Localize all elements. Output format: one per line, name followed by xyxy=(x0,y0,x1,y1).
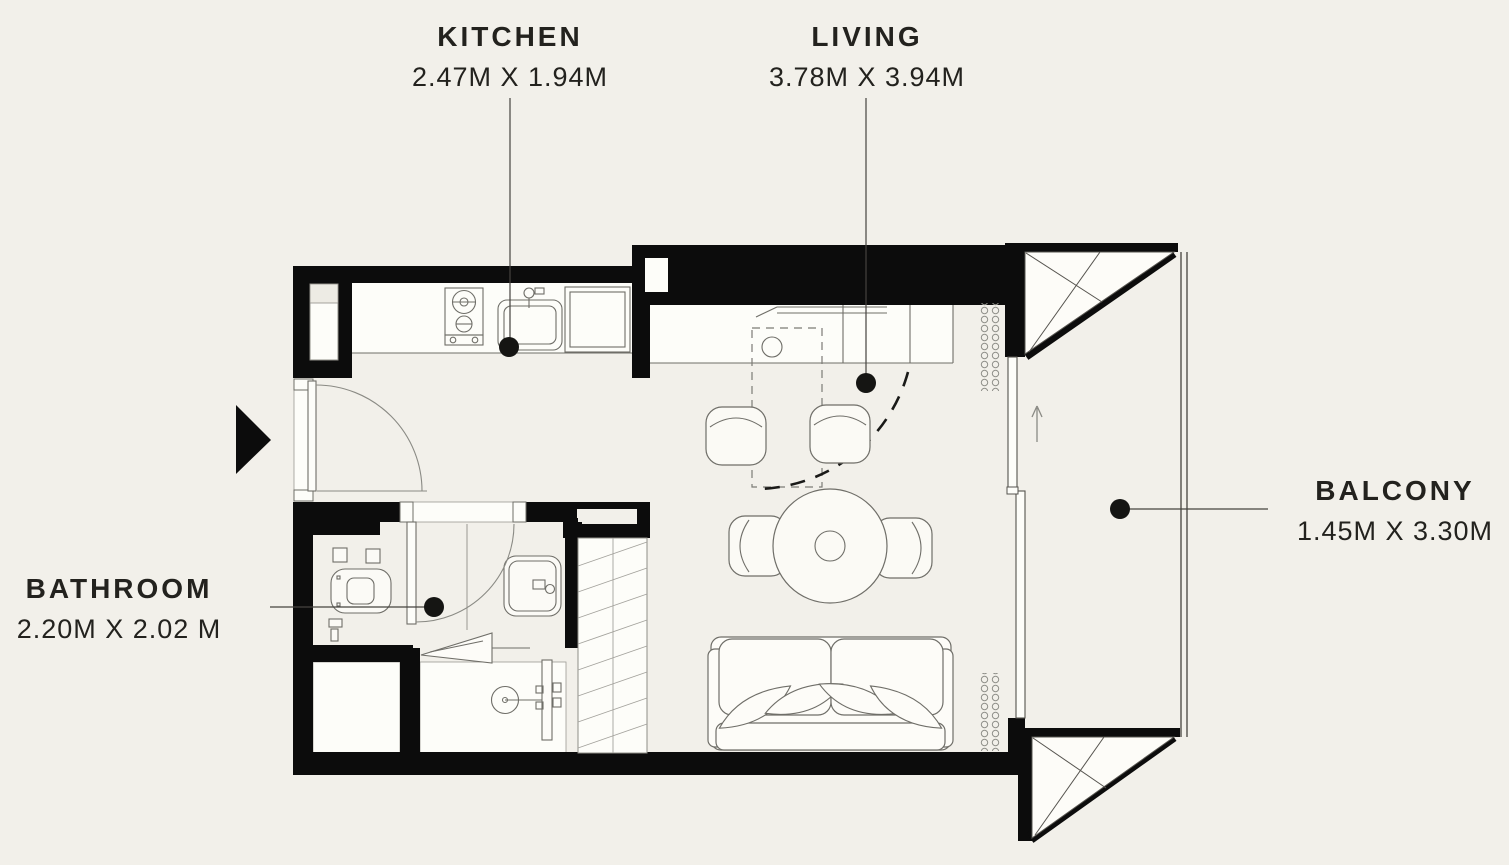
shaft-hatch xyxy=(578,538,647,753)
floor-plan-drawing xyxy=(0,0,1509,865)
dining-set xyxy=(706,405,932,603)
balcony-corner-brace-bottom xyxy=(1032,737,1174,838)
balcony-railing xyxy=(1181,252,1187,737)
living-label: LIVING xyxy=(769,22,965,52)
bathroom-label: BATHROOM xyxy=(17,574,222,604)
sofa-icon xyxy=(708,637,953,750)
balcony-label-group: BALCONY 1.45M X 3.30M xyxy=(1297,476,1493,545)
slide-direction-arrow-icon xyxy=(1032,406,1042,442)
bathroom-label-group: BATHROOM 2.20M X 2.02 M xyxy=(17,574,222,643)
radiator-coil-icon xyxy=(979,673,1001,751)
refrigerator-icon xyxy=(565,287,630,352)
living-size: 3.78M X 3.94M xyxy=(769,63,965,91)
sliding-door xyxy=(1007,357,1025,718)
kitchen-size: 2.47M X 1.94M xyxy=(412,63,608,91)
wall-niche-cutout xyxy=(645,258,668,292)
wall-recess xyxy=(310,284,338,360)
toilet-icon xyxy=(329,548,391,641)
entry-arrow-icon xyxy=(236,405,271,474)
balcony-size: 1.45M X 3.30M xyxy=(1297,517,1493,545)
bathroom-leader-dot xyxy=(424,597,444,617)
dining-chair-icon xyxy=(706,407,766,465)
kitchen-leader-dot xyxy=(499,337,519,357)
shower-glass-door-icon xyxy=(421,633,530,663)
balcony-leader-dot xyxy=(1110,499,1130,519)
washbasin-icon xyxy=(504,556,561,616)
bathroom-size: 2.20M X 2.02 M xyxy=(17,615,222,643)
round-table-icon xyxy=(773,489,887,603)
floorplan-page: KITCHEN 2.47M X 1.94M LIVING 3.78M X 3.9… xyxy=(0,0,1509,865)
kitchen-label: KITCHEN xyxy=(412,22,608,52)
radiator-coil-icon xyxy=(979,303,1001,391)
living-label-group: LIVING 3.78M X 3.94M xyxy=(769,22,965,91)
living-leader-dot xyxy=(856,373,876,393)
dining-chair-icon xyxy=(810,405,870,463)
entry-door-icon xyxy=(294,379,427,501)
kitchen-label-group: KITCHEN 2.47M X 1.94M xyxy=(412,22,608,91)
balcony-label: BALCONY xyxy=(1297,476,1493,506)
balcony-corner-brace-top xyxy=(1025,252,1174,354)
